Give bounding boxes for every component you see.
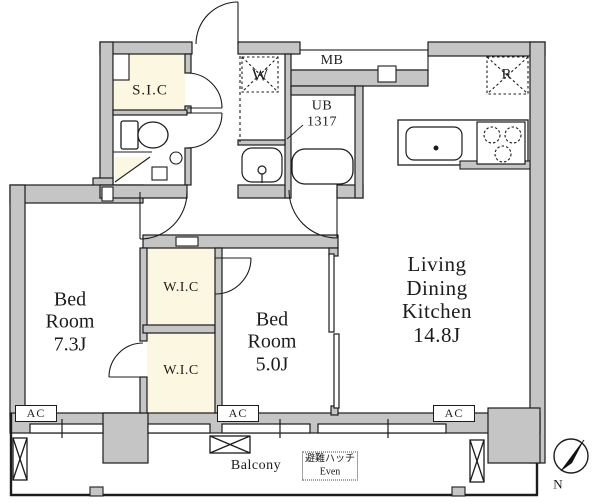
ldk-label: Living Dining Kitchen 14.8J: [402, 253, 472, 347]
bedroom2-label: Bed Room 5.0J: [248, 308, 297, 375]
north-label: N: [553, 478, 562, 493]
washer-label: W: [252, 65, 268, 84]
toilet: [121, 121, 168, 149]
meter-box-recess: [290, 50, 428, 70]
wic-upper-label: W.I.C: [163, 280, 198, 296]
sliding-doors: [329, 254, 339, 408]
meter-box-label: MB: [321, 53, 344, 69]
ac-box-ldk: AC: [433, 405, 475, 422]
ac-box-bedroom2: AC: [217, 405, 259, 422]
refrigerator-label: R: [501, 67, 512, 84]
wic-lower-label: W.I.C: [163, 363, 198, 379]
compass: [554, 439, 588, 473]
balcony-label: Balcony: [231, 458, 281, 474]
evacuation-hatch-label: 避難ハッチ Even: [302, 452, 358, 481]
washbasin: [242, 148, 282, 183]
sic-label: S.I.C: [132, 83, 168, 100]
bedroom1-label: Bed Room 7.3J: [46, 288, 95, 355]
unit-bath-label: UB 1317: [307, 98, 337, 129]
kitchen-counter: [398, 120, 530, 169]
floor-plan: S.I.C W MB UB 1317 R Bed Room 7.3J W.I.C…: [0, 0, 600, 504]
bathtub: [292, 149, 353, 184]
ac-box-bedroom1: AC: [15, 405, 57, 422]
